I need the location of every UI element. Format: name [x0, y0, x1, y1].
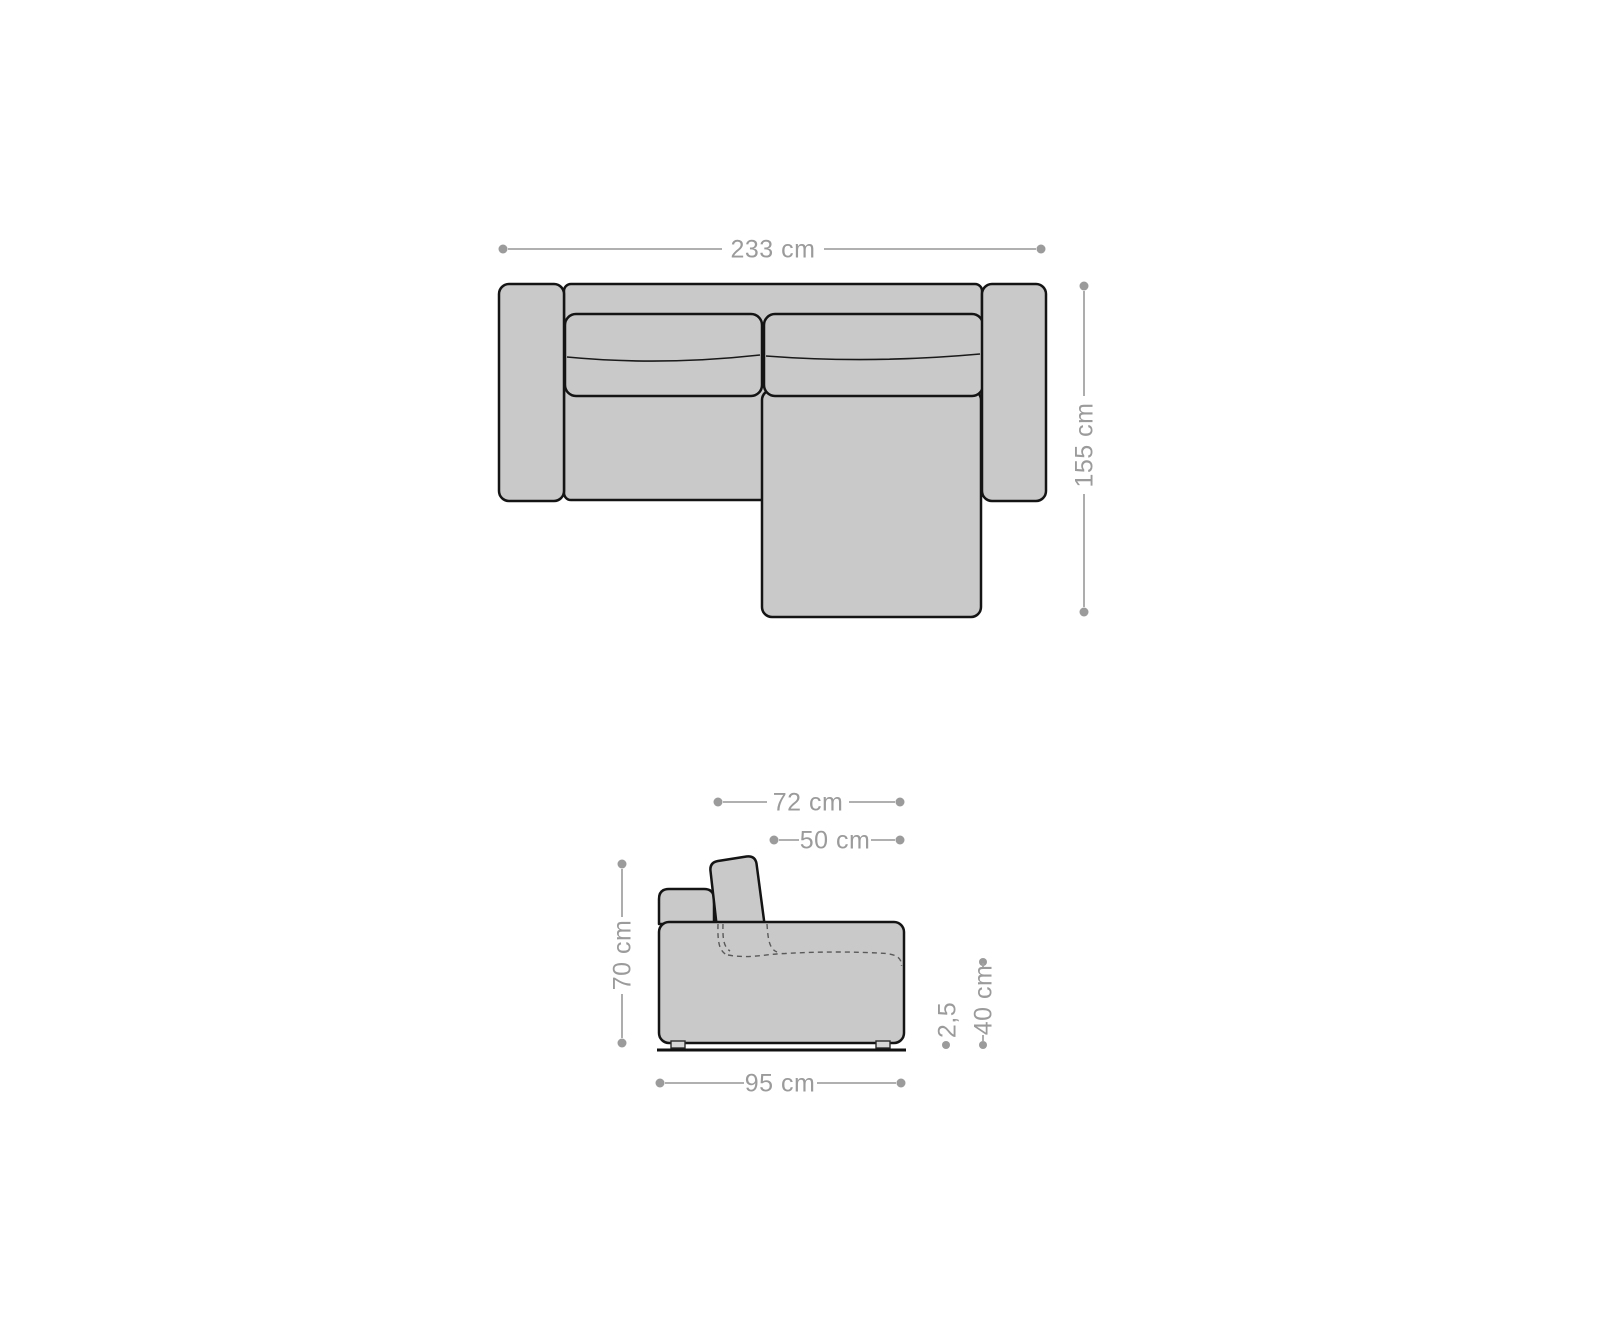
sofa-dimension-diagram: 233 cm 155 cm [0, 0, 1600, 1333]
side-view: 72 cm 50 cm 70 cm [608, 788, 997, 1097]
dimension-dot [770, 836, 779, 845]
left-seat-cushion-shape [565, 314, 762, 396]
seat-height-dimension-label: 40 cm [969, 965, 997, 1036]
sofa-body-side-shape [659, 922, 904, 1043]
top-view: 233 cm 155 cm [499, 235, 1099, 617]
right-seat-cushion-shape [764, 314, 983, 396]
top-view-width-dimension: 233 cm [499, 235, 1046, 263]
side-view-upper-depth-dimension: 72 cm [714, 788, 905, 816]
height-dimension-label: 70 cm [608, 920, 636, 991]
dimension-dot [618, 1039, 627, 1048]
dimension-dot [656, 1079, 665, 1088]
backrest-depth-dimension-label: 50 cm [800, 826, 871, 854]
top-width-dimension-label: 233 cm [731, 235, 816, 263]
foot-height-dimension-label: 2,5 [933, 1002, 961, 1038]
dimension-dot [1037, 245, 1046, 254]
side-view-base-depth-dimension: 95 cm [656, 1069, 906, 1097]
dimension-dot [896, 836, 905, 845]
dimension-dot [1080, 608, 1089, 617]
side-view-backrest-depth-dimension: 50 cm [770, 826, 905, 854]
right-armrest-shape [982, 284, 1046, 501]
side-view-seat-height-dimension: 40 cm [969, 958, 997, 1049]
side-view-foot-height-dimension: 2,5 [933, 1002, 961, 1049]
diagram-canvas: 233 cm 155 cm [0, 0, 1600, 1333]
chaise-longue-shape [762, 390, 981, 617]
dimension-dot [714, 798, 723, 807]
dimension-dot [897, 1079, 906, 1088]
left-armrest-shape [499, 284, 564, 501]
top-view-depth-dimension: 155 cm [1070, 282, 1098, 617]
dimension-dot [499, 245, 508, 254]
dimension-dot [618, 860, 627, 869]
dimension-dot [979, 1041, 987, 1049]
upper-depth-dimension-label: 72 cm [773, 788, 844, 816]
dimension-dot [1080, 282, 1089, 291]
side-armrest-shape [659, 889, 714, 924]
top-depth-dimension-label: 155 cm [1070, 403, 1098, 488]
backrest-cushion-shape [710, 856, 764, 924]
sofa-foot [876, 1041, 890, 1048]
dimension-dot [942, 1041, 950, 1049]
side-view-height-dimension: 70 cm [608, 860, 636, 1048]
base-depth-dimension-label: 95 cm [745, 1069, 816, 1097]
sofa-foot [671, 1041, 685, 1048]
dimension-dot [896, 798, 905, 807]
